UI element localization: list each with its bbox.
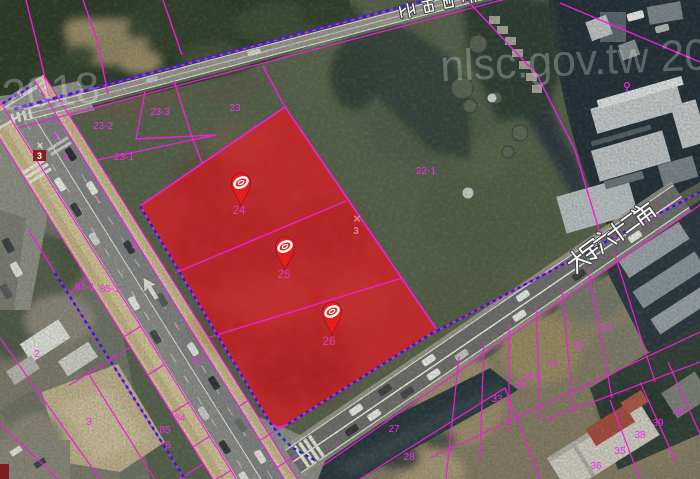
svg-text:26: 26	[323, 336, 336, 348]
svg-text:48: 48	[672, 407, 684, 418]
svg-text:3: 3	[353, 226, 359, 237]
svg-text:35: 35	[614, 446, 626, 457]
svg-text:39: 39	[652, 418, 664, 429]
svg-text:40: 40	[514, 380, 526, 391]
svg-text:38: 38	[634, 430, 646, 441]
svg-text:25: 25	[278, 269, 291, 281]
svg-text:2: 2	[34, 349, 40, 360]
svg-text:2018: 2018	[0, 63, 102, 120]
svg-text:43: 43	[600, 323, 612, 334]
svg-text:42: 42	[572, 341, 584, 352]
svg-text:22-1: 22-1	[416, 166, 436, 177]
svg-text:23-3: 23-3	[150, 107, 170, 118]
svg-text:23: 23	[229, 103, 241, 114]
svg-text:24: 24	[233, 205, 246, 217]
svg-text:5: 5	[131, 240, 137, 251]
svg-text:41: 41	[547, 359, 559, 370]
svg-text:84: 84	[174, 413, 186, 424]
svg-text:6: 6	[165, 440, 171, 451]
svg-text:85-1: 85-1	[100, 284, 120, 295]
svg-text:84-1: 84-1	[75, 282, 95, 293]
svg-text:3: 3	[52, 132, 58, 143]
svg-text:3: 3	[86, 417, 92, 428]
svg-text:33: 33	[491, 394, 503, 405]
svg-text:×: ×	[353, 211, 361, 226]
svg-text:6-1: 6-1	[192, 355, 207, 366]
svg-text:36: 36	[590, 461, 602, 472]
svg-text:85: 85	[159, 425, 171, 436]
svg-text:23-1: 23-1	[114, 152, 134, 163]
svg-text:28: 28	[403, 452, 415, 463]
svg-text:4: 4	[63, 153, 69, 164]
svg-text:23-2: 23-2	[93, 121, 113, 132]
svg-text:27: 27	[388, 424, 400, 435]
svg-text:3: 3	[37, 151, 42, 161]
